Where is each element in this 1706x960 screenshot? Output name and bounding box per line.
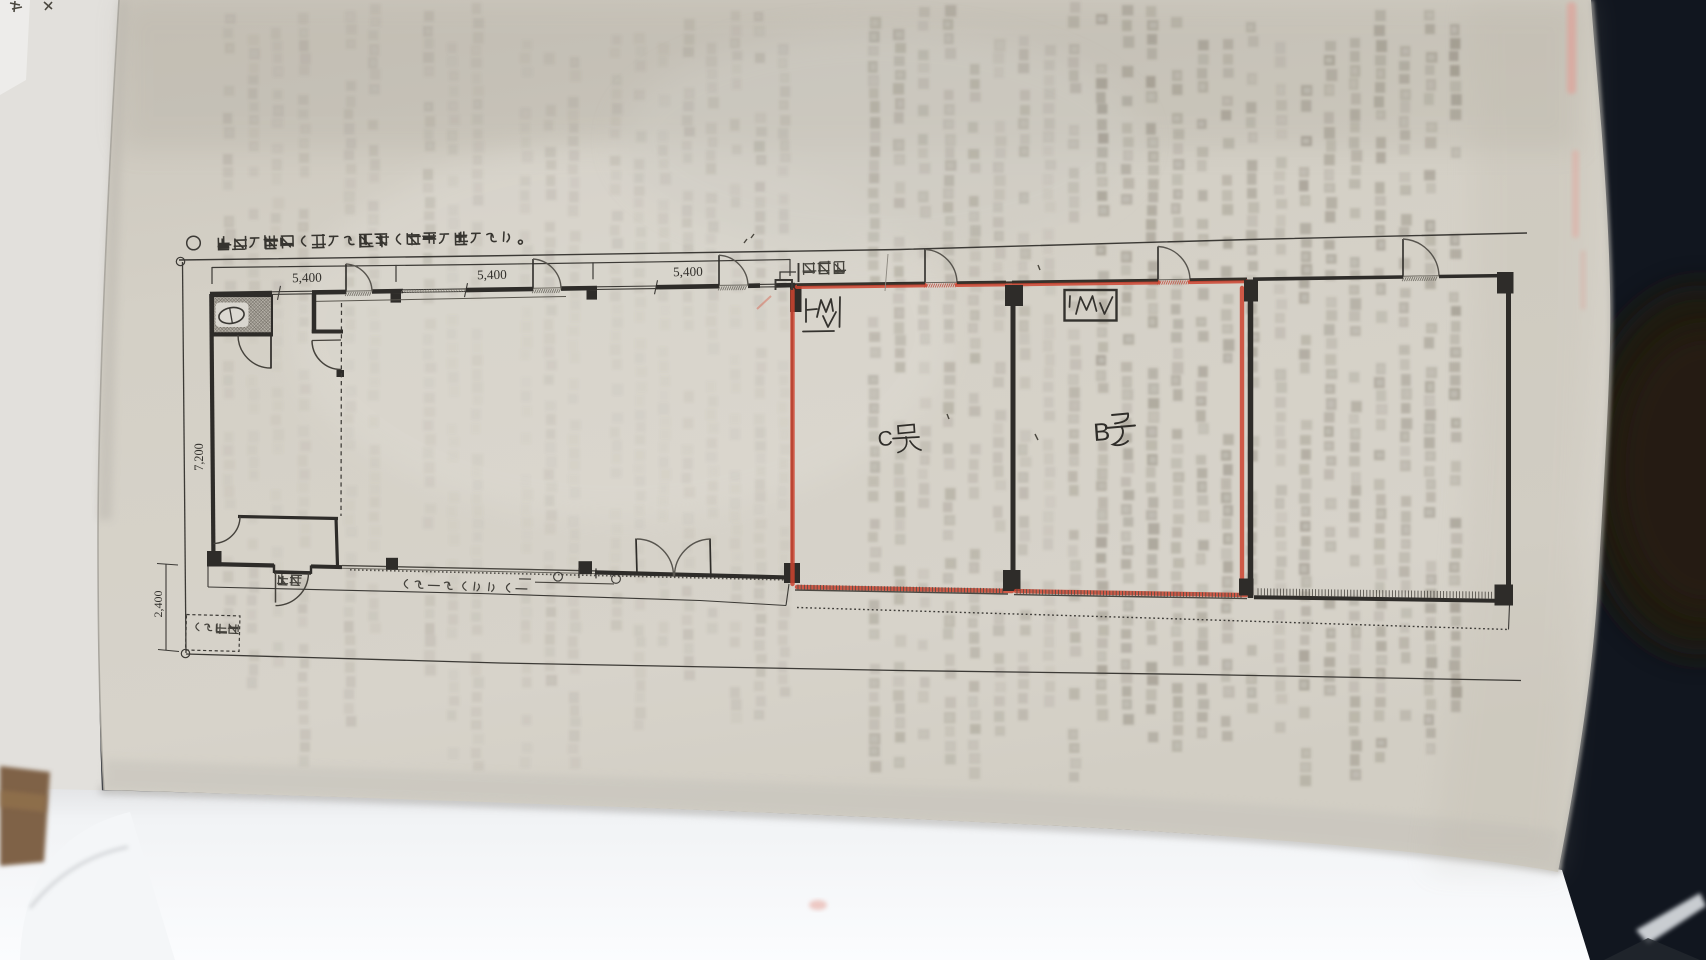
svg-text:2,400: 2,400 [151,591,165,618]
svg-text:C: C [877,427,893,451]
svg-text:5,400: 5,400 [673,264,703,280]
svg-text:7,200: 7,200 [192,443,206,470]
svg-text:5,400: 5,400 [292,270,322,286]
svg-text:B: B [1092,418,1111,447]
svg-text:5,400: 5,400 [477,267,507,283]
